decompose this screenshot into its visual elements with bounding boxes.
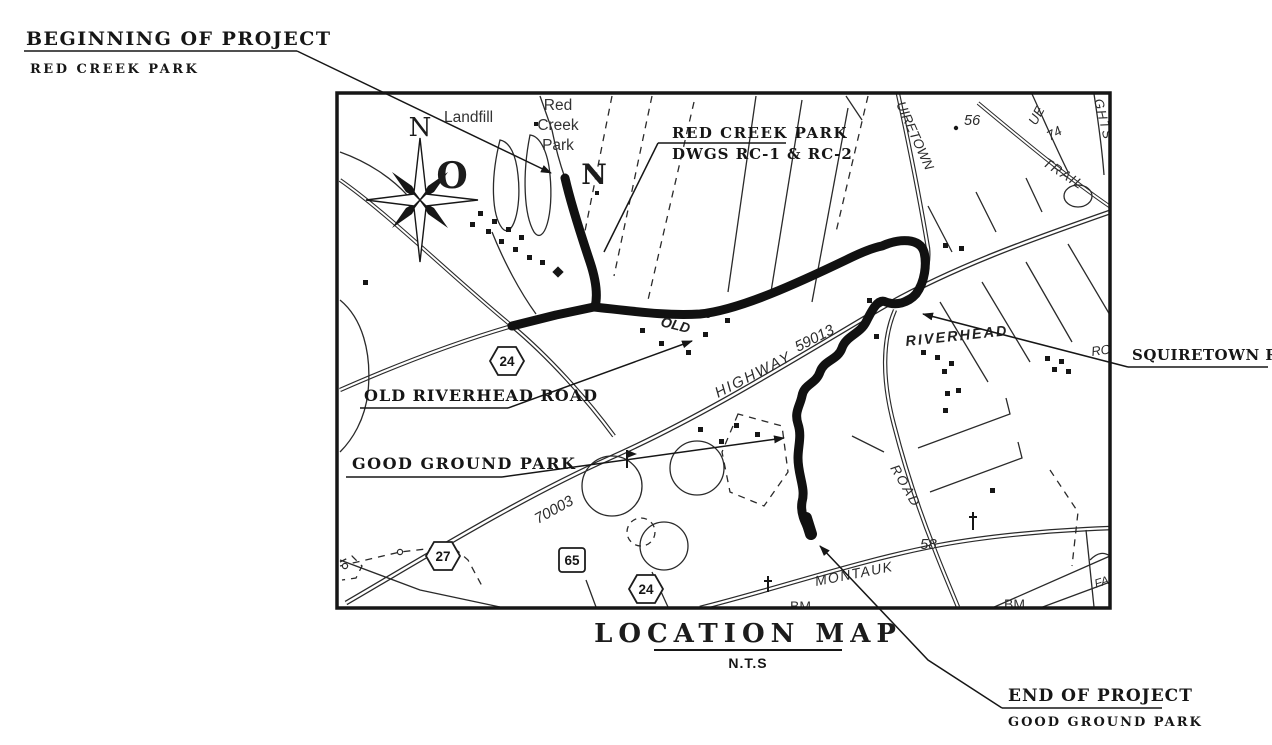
benchmark-1-label: BM <box>790 598 811 614</box>
red-creek-line3: Park <box>542 137 574 154</box>
project-route <box>512 178 925 534</box>
montauk-road <box>700 528 1112 608</box>
end-of-project-subtitle: GOOD GROUND PARK <box>1008 715 1203 730</box>
old-riverhead-road-label: OLD RIVERHEAD ROAD <box>364 386 598 405</box>
road-label: ROAD <box>887 462 923 510</box>
squiretown-partial-label: UIRETOWN <box>893 99 937 172</box>
shield-24b-number: 24 <box>638 582 654 597</box>
north-route-marker: N <box>581 158 607 191</box>
red-creek-line2: Creek <box>537 117 579 134</box>
shield-24a-number: 24 <box>499 354 515 369</box>
number-58-label: 58 <box>920 536 937 553</box>
heights-partial-label: GHTS <box>1091 97 1116 142</box>
landfill-label: Landfill <box>444 109 493 126</box>
beginning-leader <box>297 51 551 173</box>
beginning-of-project-title: BEGINNING OF PROJECT <box>26 28 332 50</box>
squiretown-road-label: SQUIRETOWN ROAD <box>1132 346 1272 364</box>
dwgs-leader <box>604 143 658 252</box>
end-of-project-title: END OF PROJECT <box>1008 686 1193 706</box>
location-map-sheet: Landfill Red Creek Park N O N UIRETOWN R… <box>0 0 1272 745</box>
compass-o-label: O <box>436 155 467 197</box>
highway-number2-label: 70003 <box>532 492 577 527</box>
location-map-title: LOCATION MAP <box>594 619 902 649</box>
montauk-label: MONTAUK <box>814 558 895 589</box>
dwgs-label-line2: DWGS RC-1 & RC-2 <box>672 145 853 163</box>
dwgs-label-line1: RED CREEK PARK <box>672 124 848 142</box>
old-riverhead-road-line <box>340 326 614 436</box>
location-map-scale: N.T.S <box>728 655 767 671</box>
red-creek-line1: Red <box>544 97 572 114</box>
beginning-of-project-subtitle: RED CREEK PARK <box>30 62 199 77</box>
map-drawing: Landfill Red Creek Park N O N UIRETOWN R… <box>0 0 1272 745</box>
number-56-label: 56 <box>964 113 981 129</box>
trail-label: TRAIL <box>1040 155 1087 193</box>
shield-27-number: 27 <box>435 549 450 564</box>
compass-n-label: N <box>409 113 432 143</box>
riverhead-label: RIVERHEAD <box>905 323 1010 350</box>
shield-65-number: 65 <box>564 553 580 568</box>
highway-label: HIGHWAY <box>712 348 795 401</box>
fa-partial-label: FA <box>1093 573 1111 591</box>
map-linework: Landfill Red Creek Park N O N UIRETOWN R… <box>340 94 1116 614</box>
interchange-loops <box>582 185 1092 570</box>
good-ground-park-label: GOOD GROUND PARK <box>352 454 576 473</box>
avenue-partial-label: UE <box>1025 103 1048 127</box>
